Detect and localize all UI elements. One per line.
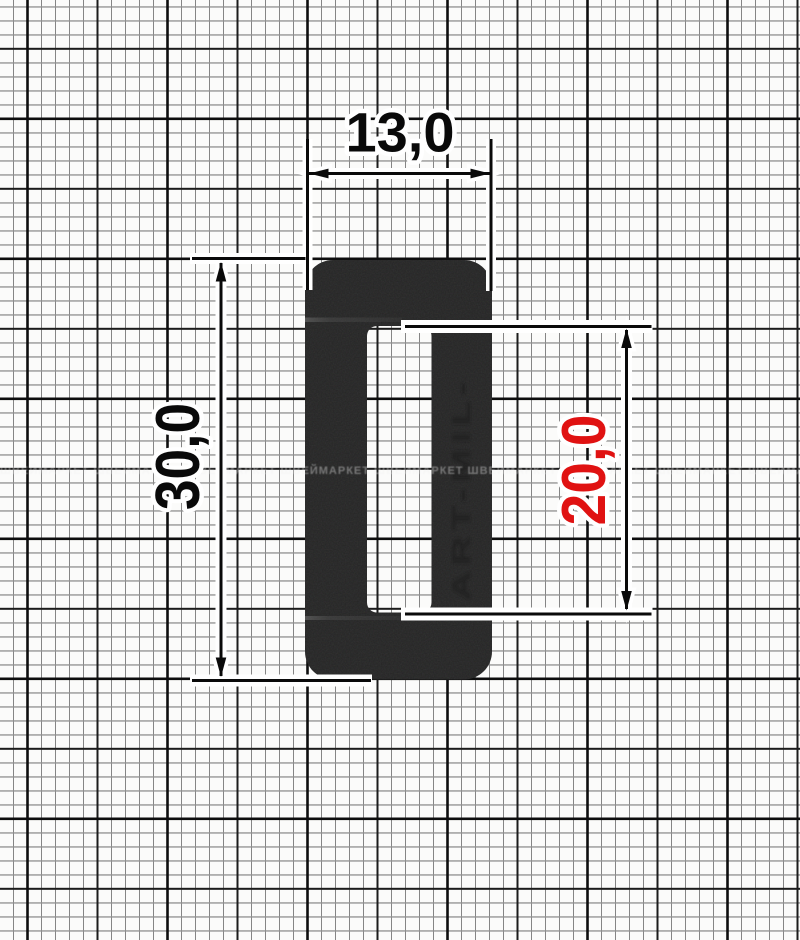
svg-text:30,0: 30,0 <box>144 403 213 510</box>
svg-text:20,0: 20,0 <box>549 414 619 525</box>
svg-text:13,0: 13,0 <box>346 101 455 164</box>
svg-text:-ART-MIL-: -ART-MIL- <box>448 376 476 620</box>
svg-text:ШВЕЙМАРКЕТ ШВЕЙМАРКЕТ ШВЕЙМАРК: ШВЕЙМАРКЕТ ШВЕЙМАРКЕТ ШВЕЙМАРКЕТ ШВЕЙМАР… <box>0 464 800 477</box>
